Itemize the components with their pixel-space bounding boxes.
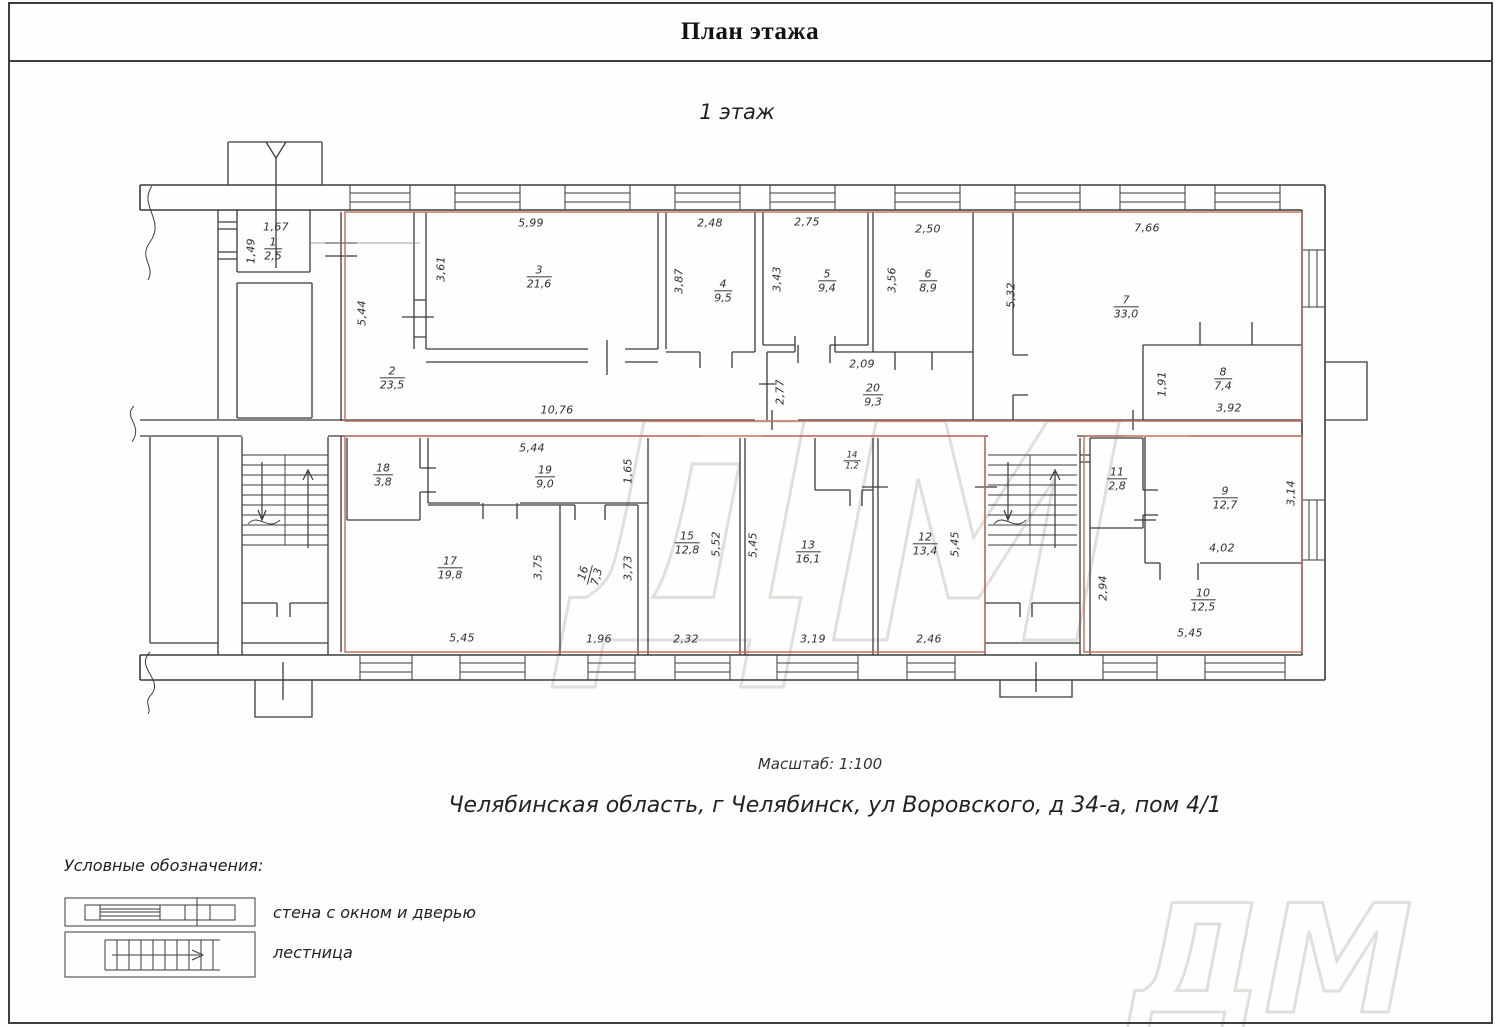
page-title: План этажа: [0, 18, 1500, 46]
legend-item-stairs: лестница: [273, 943, 353, 962]
legend-title: Условные обозначения:: [64, 856, 263, 875]
floor-plan-page: ДМ ДМ: [0, 0, 1500, 1027]
floor-label: 1 этаж: [699, 100, 775, 124]
title-divider: [8, 60, 1493, 62]
legend-item-wall-window-door: стена с окном и дверью: [273, 903, 476, 922]
scale-label: Масштаб: 1:100: [758, 755, 882, 773]
address-label: Челябинская область, г Челябинск, ул Вор…: [448, 793, 1221, 818]
